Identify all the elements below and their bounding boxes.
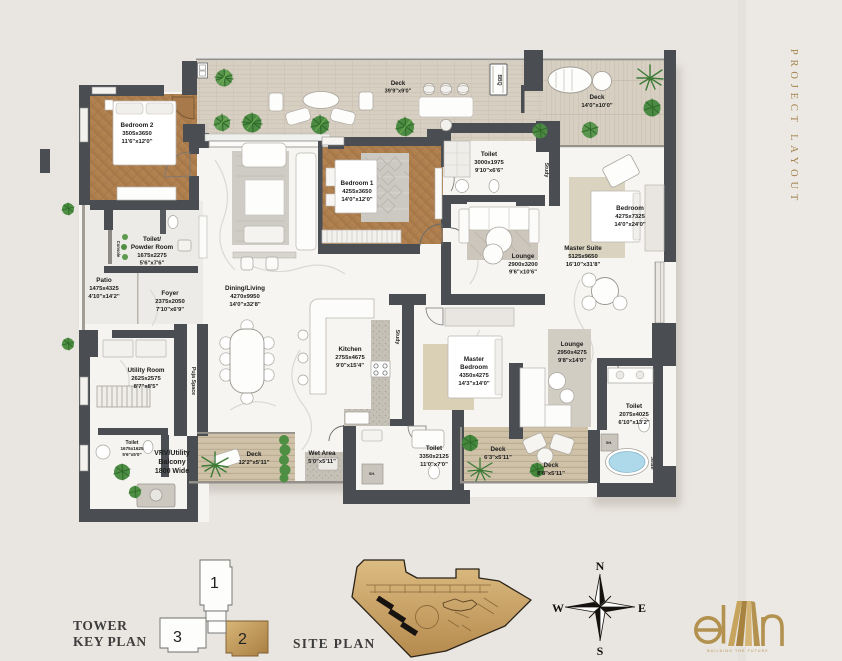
svg-text:2075x4025: 2075x4025 xyxy=(619,412,649,418)
svg-text:2375x2050: 2375x2050 xyxy=(155,299,185,305)
svg-text:Jacuzzi: Jacuzzi xyxy=(650,457,654,470)
svg-text:4275x7325: 4275x7325 xyxy=(615,214,645,220)
svg-text:Patio: Patio xyxy=(96,277,112,284)
svg-text:Bedroom: Bedroom xyxy=(616,205,644,212)
svg-text:2755x4675: 2755x4675 xyxy=(335,355,365,361)
svg-text:4270x9950: 4270x9950 xyxy=(230,294,260,300)
svg-text:BUILDING THE FUTURE: BUILDING THE FUTURE xyxy=(707,649,769,653)
svg-text:Lounge: Lounge xyxy=(512,253,535,260)
svg-text:1: 1 xyxy=(210,575,219,592)
svg-text:KEY PLAN: KEY PLAN xyxy=(73,634,147,649)
svg-text:Bedroom: Bedroom xyxy=(460,364,488,371)
svg-text:39'9"x9'0": 39'9"x9'0" xyxy=(385,89,412,95)
svg-text:9'6"x10'6": 9'6"x10'6" xyxy=(509,270,537,276)
svg-text:TOWER: TOWER xyxy=(73,618,128,633)
svg-text:2950x4275: 2950x4275 xyxy=(557,350,587,356)
svg-text:Master Suite: Master Suite xyxy=(564,245,602,252)
svg-text:Deck: Deck xyxy=(589,94,605,101)
svg-text:Kitchen: Kitchen xyxy=(338,346,361,353)
svg-text:Bedroom 2: Bedroom 2 xyxy=(121,122,154,129)
svg-text:14'0"x10'0": 14'0"x10'0" xyxy=(581,103,613,109)
svg-text:Powder Room: Powder Room xyxy=(131,244,174,251)
svg-text:5'0"x5'11": 5'0"x5'11" xyxy=(308,459,336,465)
svg-text:Study: Study xyxy=(394,330,400,345)
svg-text:Utility Room: Utility Room xyxy=(127,367,164,374)
svg-text:W: W xyxy=(552,601,564,615)
svg-text:4'10"x14'2": 4'10"x14'2" xyxy=(88,294,120,300)
svg-text:4350x4275: 4350x4275 xyxy=(459,373,489,379)
svg-text:Toilet: Toilet xyxy=(626,403,643,410)
svg-text:3350x2125: 3350x2125 xyxy=(419,454,449,460)
svg-text:Wet Area: Wet Area xyxy=(309,450,336,457)
svg-text:Deck: Deck xyxy=(543,462,559,469)
svg-text:Deck: Deck xyxy=(490,446,506,453)
svg-text:14'0"x32'8": 14'0"x32'8" xyxy=(229,302,261,308)
svg-text:Toilet: Toilet xyxy=(426,445,443,452)
svg-text:Master: Master xyxy=(464,356,485,363)
svg-text:Dining/Living: Dining/Living xyxy=(225,285,265,292)
svg-text:16'10"x31'8": 16'10"x31'8" xyxy=(566,262,601,268)
svg-text:9'8"x14'0": 9'8"x14'0" xyxy=(558,358,586,364)
svg-text:8'7"x8'5": 8'7"x8'5" xyxy=(134,384,159,390)
svg-text:Toilet/: Toilet/ xyxy=(143,236,161,243)
svg-text:SH.: SH. xyxy=(606,441,612,445)
svg-text:Lounge: Lounge xyxy=(561,341,584,348)
svg-text:Toilet: Toilet xyxy=(481,151,498,158)
svg-text:1475x4325: 1475x4325 xyxy=(89,286,119,292)
svg-text:N: N xyxy=(596,559,605,573)
svg-text:1675x1625: 1675x1625 xyxy=(121,446,144,451)
svg-text:Deck: Deck xyxy=(391,81,406,87)
svg-text:6'10"x13'2": 6'10"x13'2" xyxy=(618,420,650,426)
svg-text:Deck: Deck xyxy=(246,451,262,458)
svg-text:5'6"x5'0": 5'6"x5'0" xyxy=(122,452,141,457)
svg-text:SH.: SH. xyxy=(369,472,375,476)
svg-text:Puja Space: Puja Space xyxy=(190,367,196,395)
svg-text:14'3"x14'0": 14'3"x14'0" xyxy=(458,381,490,387)
svg-text:9'0"x15'4": 9'0"x15'4" xyxy=(336,363,364,369)
svg-text:Bedroom 1: Bedroom 1 xyxy=(341,180,374,187)
svg-text:2: 2 xyxy=(238,631,247,648)
svg-text:11'6"x12'0": 11'6"x12'0" xyxy=(122,139,153,145)
svg-text:5125x9650: 5125x9650 xyxy=(568,254,598,260)
svg-text:14'0"x24'0": 14'0"x24'0" xyxy=(614,222,646,228)
svg-text:14'0"x12'0": 14'0"x12'0" xyxy=(341,197,373,203)
svg-text:Balcony: Balcony xyxy=(158,459,185,466)
svg-text:11'0"x7'0": 11'0"x7'0" xyxy=(420,462,448,468)
svg-text:E: E xyxy=(638,601,646,615)
svg-text:2625x2575: 2625x2575 xyxy=(131,376,161,382)
svg-text:Foyer: Foyer xyxy=(161,290,179,297)
svg-text:BBQ: BBQ xyxy=(496,74,502,85)
svg-text:5'6"x7'6": 5'6"x7'6" xyxy=(140,261,165,267)
svg-text:9'10"x6'6": 9'10"x6'6" xyxy=(475,168,503,174)
svg-text:8'8"x5'11": 8'8"x5'11" xyxy=(537,471,565,477)
svg-text:PROJECT LAYOUT: PROJECT LAYOUT xyxy=(788,49,799,205)
svg-text:Study: Study xyxy=(543,163,549,178)
svg-text:VRV/Utility: VRV/Utility xyxy=(154,450,190,457)
svg-text:4255x3650: 4255x3650 xyxy=(342,189,372,195)
svg-text:3505x3650: 3505x3650 xyxy=(122,131,152,137)
svg-text:7'10"x6'9": 7'10"x6'9" xyxy=(156,307,184,313)
svg-text:3: 3 xyxy=(173,629,182,646)
svg-text:1800 Wide: 1800 Wide xyxy=(155,468,189,475)
svg-text:3000x1975: 3000x1975 xyxy=(474,160,504,166)
svg-text:S: S xyxy=(597,644,604,658)
svg-text:2900x3200: 2900x3200 xyxy=(508,262,538,268)
svg-text:SITE PLAN: SITE PLAN xyxy=(293,636,376,651)
svg-text:Console: Console xyxy=(116,241,121,258)
svg-text:6'3"x5'11": 6'3"x5'11" xyxy=(484,455,512,461)
svg-text:12'2"x5'11": 12'2"x5'11" xyxy=(239,460,270,466)
svg-text:1675x2275: 1675x2275 xyxy=(137,253,167,259)
